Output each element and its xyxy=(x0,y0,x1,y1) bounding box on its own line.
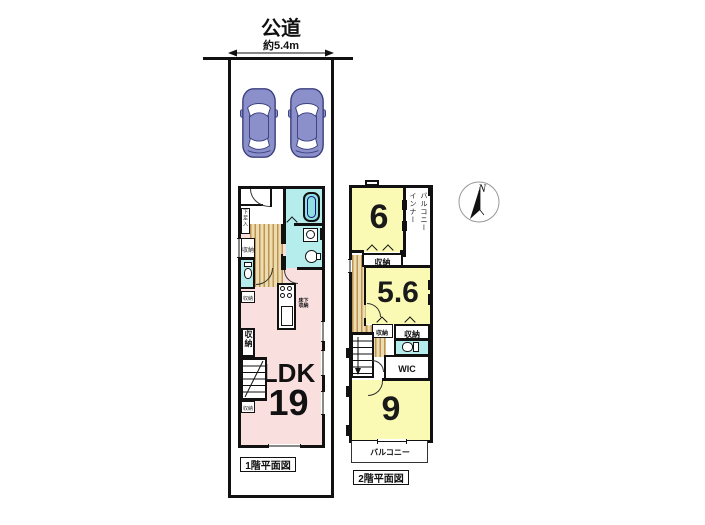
underfloor-storage-label: 床下 収納 xyxy=(296,296,311,312)
shoe-cabinet-label: 下足入 xyxy=(242,209,249,227)
room56-size-label: 5.6 xyxy=(366,278,430,308)
kitchen-sink-icon xyxy=(281,306,293,326)
closet: 収納 xyxy=(241,401,255,413)
closet-label: 収納 xyxy=(242,295,254,302)
roof-door xyxy=(365,180,379,186)
toilet-bowl-icon xyxy=(244,268,252,279)
wall xyxy=(283,189,286,226)
wall xyxy=(281,224,283,244)
wall xyxy=(364,318,366,326)
wic-label: WIC xyxy=(386,364,428,374)
closet-label: 収納 xyxy=(243,330,253,348)
car-icon xyxy=(240,84,278,162)
closet: 収納 xyxy=(241,291,255,303)
wall xyxy=(297,267,322,270)
floorplan-canvas: 公道 約5.4m xyxy=(0,0,705,525)
stove-burner-icon xyxy=(280,293,285,298)
underfloor-storage-line2: 収納 xyxy=(298,304,308,310)
toilet-tank-icon xyxy=(413,342,419,352)
window xyxy=(321,321,325,342)
bathtub-icon xyxy=(303,192,320,222)
toilet-tank-icon xyxy=(244,262,252,267)
room9-size-label: 9 xyxy=(352,392,430,426)
balcony-label: バルコニー xyxy=(360,447,420,458)
window-small xyxy=(346,425,351,436)
room6-size-label: 6 xyxy=(352,200,406,234)
window xyxy=(321,391,325,415)
window xyxy=(237,238,241,258)
window xyxy=(268,444,301,448)
north-compass-icon: N xyxy=(456,176,502,224)
window-small xyxy=(428,186,433,196)
closet-label: 収納 xyxy=(364,257,401,268)
faucet-icon xyxy=(316,253,321,260)
stove-burner-icon xyxy=(280,286,285,291)
closet-label: 収納 xyxy=(242,405,254,412)
front-door-leaf xyxy=(270,189,272,207)
toilet-bowl-icon xyxy=(402,342,413,352)
floor1-caption-box: 1階平面図 xyxy=(240,457,296,472)
closet: 収納 xyxy=(241,238,255,258)
wall xyxy=(294,223,322,226)
window xyxy=(321,350,325,376)
window-small xyxy=(428,342,433,352)
closet: 収納 xyxy=(394,324,430,340)
inner-balcony-label-col2: バルコニー xyxy=(419,192,428,256)
window-small xyxy=(320,228,325,240)
window-small xyxy=(402,221,407,231)
inner-balcony-label-group: インナー バルコニー xyxy=(407,192,429,256)
washing-machine-drum-icon xyxy=(306,230,315,239)
closet-label: 収納 xyxy=(373,328,391,337)
window-small xyxy=(402,200,407,210)
floor2-caption-box: 2階平面図 xyxy=(353,470,409,485)
stove-burner-icon xyxy=(287,293,292,298)
floor2-caption: 2階平面図 xyxy=(358,470,404,485)
closet: 収納 xyxy=(372,324,393,338)
wall xyxy=(283,256,286,270)
inner-balcony-label-col1: インナー xyxy=(408,192,417,256)
wic-room: WIC xyxy=(384,355,430,380)
wall xyxy=(281,254,283,270)
floor2-stairs xyxy=(351,332,374,378)
floor2-balcony: バルコニー xyxy=(351,441,428,463)
stove-burner-icon xyxy=(287,286,292,291)
car-icon xyxy=(288,84,326,162)
window-small xyxy=(346,348,351,358)
balcony-door xyxy=(377,439,407,444)
window-small xyxy=(346,386,351,397)
shoe-cabinet: 下足入 xyxy=(241,208,250,234)
window-small xyxy=(428,294,433,305)
closet-label: 収納 xyxy=(242,245,254,254)
floor1-stairs xyxy=(241,357,267,401)
window xyxy=(348,259,352,273)
ldk-size-label: 19 xyxy=(268,386,308,420)
floor1-caption: 1階平面図 xyxy=(245,457,291,472)
closet: 収納 xyxy=(241,328,255,357)
closet: 収納 xyxy=(362,253,403,267)
window-small xyxy=(428,280,433,290)
wall xyxy=(283,226,286,244)
